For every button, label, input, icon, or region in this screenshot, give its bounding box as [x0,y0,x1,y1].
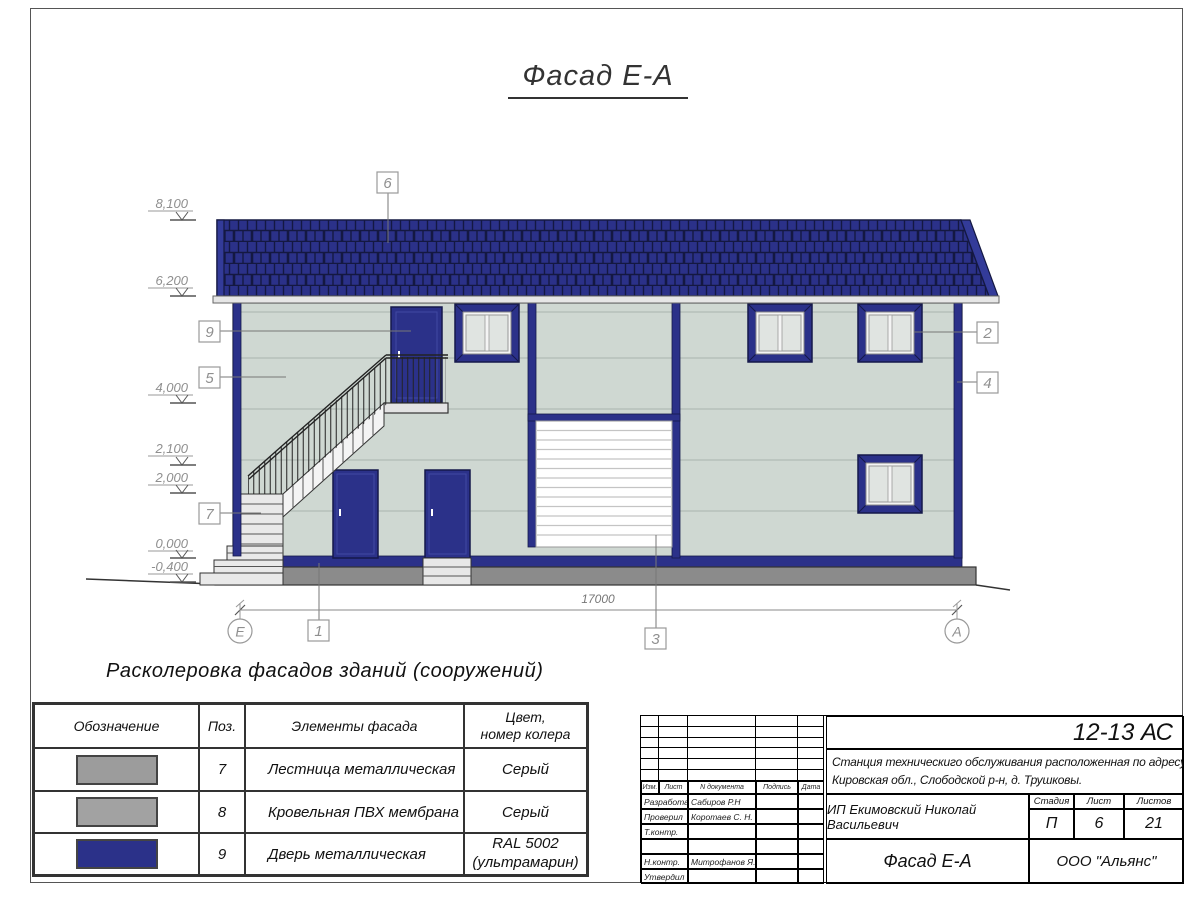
callout-7: 7 [205,506,214,523]
callout-9: 9 [205,324,214,341]
door-left [333,470,378,558]
legend-table: Обозначение Поз. Элементы фасада Цвет, н… [32,702,589,877]
callout-3: 3 [651,631,660,648]
role-label: Утвердил [641,869,688,884]
railing-balusters [388,357,446,403]
legend-color: RAL 5002 (ультрамарин) [464,833,587,875]
svg-text:8,100: 8,100 [155,196,188,211]
swatch-gray-membrane [76,797,158,827]
callout-6: 6 [383,175,392,192]
role-name: Коротаев С. Н. [688,809,756,824]
rev-col-date: Дата [798,781,824,794]
dimension-value: 17000 [581,592,615,606]
sheets-label: Листов [1124,794,1184,809]
landing [384,403,448,413]
legend-color: Серый [464,791,587,833]
drawing-title: Фасад Е-А [826,839,1029,884]
revision-header: Изм. Лист N документа Подпись Дата [641,781,826,794]
object-description: Станция техническиго обслуживания распол… [826,749,1184,794]
axis-markers: Е А [228,600,969,643]
role-label: Т.контр. [641,824,688,839]
stage-label: Стадия [1029,794,1074,809]
role-name [688,839,756,854]
company-name: ООО "Альянс" [1029,839,1184,884]
plinth [215,567,976,585]
swatch-gray-stairs [76,755,158,785]
role-label: Н.контр. [641,854,688,869]
legend-pos: 8 [199,791,245,833]
legend-swatch-cell [34,791,199,833]
svg-text:2,100: 2,100 [154,441,188,456]
title-block: Изм. Лист N документа Подпись Дата Разра… [640,715,1183,883]
legend-element: Кровельная ПВХ мембрана [245,791,464,833]
legend-heading: Расколеровка фасадов зданий (сооружений) [106,660,543,683]
sheets-total: 21 [1124,809,1184,839]
object-line2: Кировская обл., Слободской р-н, д. Трушк… [832,772,1082,789]
revision-grid [641,716,826,781]
corner-trim-right [954,303,962,558]
legend-element: Лестница металлическая [245,748,464,791]
role-label [641,839,688,854]
dimension-line: 17000 [235,592,962,615]
legend-col-element: Элементы фасада [245,704,464,748]
window-lower-right [858,455,922,513]
role-name [688,869,756,884]
facade-drawing: 6 9 5 7 2 4 1 3 8,100 6,200 4,000 2,100 … [0,0,1200,660]
callout-2: 2 [982,325,992,342]
door-right-stoop [423,558,471,585]
legend-col-designation: Обозначение [34,704,199,748]
role-name: Сабиров Р.Н [688,794,756,809]
callout-1: 1 [314,623,322,640]
client-name: ИП Екимовский Николай Васильевич [826,794,1029,839]
door-right [425,470,470,558]
callout-5: 5 [205,370,214,387]
window-upper-left [455,304,519,362]
legend-element: Дверь металлическая [245,833,464,875]
role-label: Проверил [641,809,688,824]
stage-value: П [1029,809,1074,839]
legend-swatch-cell [34,833,199,875]
callout-4: 4 [983,375,991,392]
legend-col-pos: Поз. [199,704,245,748]
elevation-marks: 8,100 6,200 4,000 2,100 2,000 0,000 -0,4… [148,196,196,582]
svg-text:-0,400: -0,400 [151,559,189,574]
rev-col-list: Лист [659,781,688,794]
legend-pos: 7 [199,748,245,791]
svg-text:0,000: 0,000 [155,536,188,551]
axis-right-label: А [951,624,961,640]
drawing-sheet: Фасад Е-А [0,0,1200,900]
role-name: Митрофанов Я. А. [688,854,756,869]
sheet-label: Лист [1074,794,1124,809]
doc-number: 12-13 АС [826,716,1184,749]
corner-trim-left [233,303,241,556]
rev-col-izm: Изм. [641,781,659,794]
legend-col-color: Цвет, номер колера [464,704,587,748]
rev-col-doc: N документа [688,781,756,794]
swatch-blue-door [76,839,158,869]
window-upper-middle [748,304,812,362]
axis-left-label: Е [235,624,245,640]
legend-color: Серый [464,748,587,791]
eaves-fascia [213,296,999,303]
svg-text:2,000: 2,000 [154,470,188,485]
svg-text:6,200: 6,200 [155,273,188,288]
role-label: Разработал [641,794,688,809]
role-name [688,824,756,839]
svg-text:4,000: 4,000 [155,380,188,395]
object-line1: Станция техническиго обслуживания распол… [832,754,1184,771]
sheet-number: 6 [1074,809,1124,839]
roof [217,220,998,296]
legend-swatch-cell [34,748,199,791]
roles-rows: РазработалСабиров Р.Н ПроверилКоротаев С… [641,794,826,884]
window-upper-right [858,304,922,362]
legend-pos: 9 [199,833,245,875]
rev-col-sign: Подпись [756,781,798,794]
